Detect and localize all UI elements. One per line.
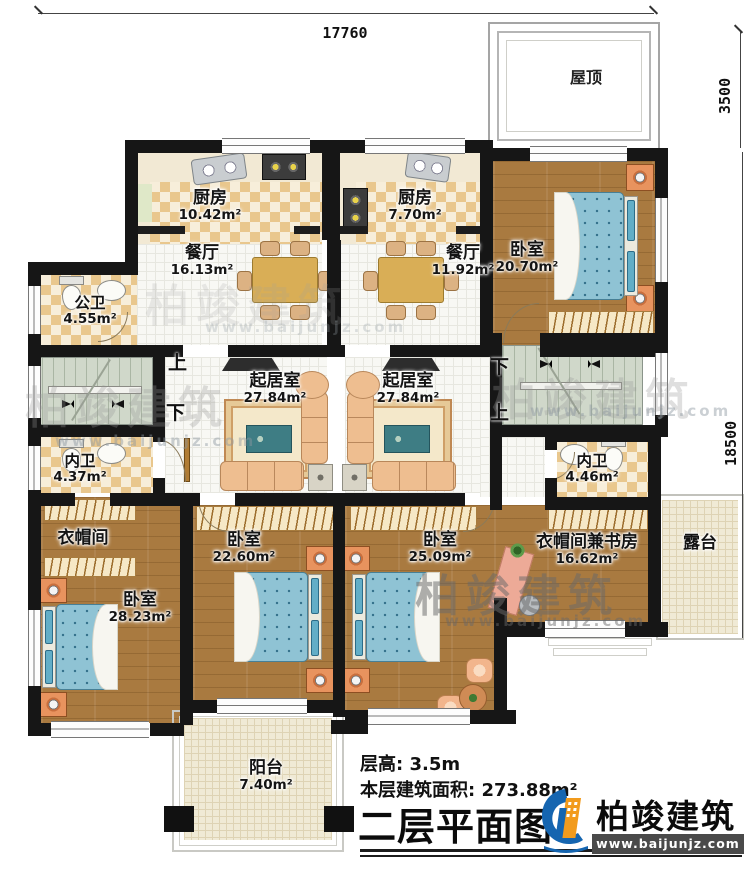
room-area: 4.46m² <box>537 470 647 486</box>
chair <box>290 241 310 256</box>
wall <box>322 140 340 240</box>
chair <box>416 305 436 320</box>
room-area: 10.42m² <box>155 208 265 224</box>
roof-label: 屋顶 <box>551 64 621 88</box>
public-bath-label: 公卫 4.55m² <box>35 294 145 328</box>
watermark-url: www.baijunjz.com <box>205 318 406 336</box>
study-label: 衣帽间兼书房 16.62m² <box>517 532 657 568</box>
right-dimension-line <box>742 152 743 638</box>
window <box>51 721 149 738</box>
room-name: 卧室 <box>385 530 495 550</box>
balcony-column <box>164 806 194 832</box>
wall <box>470 710 516 724</box>
wall <box>235 493 333 506</box>
dining-left-label: 餐厅 16.13m² <box>147 243 257 279</box>
living-left-label: 起居室 27.84m² <box>220 371 330 407</box>
brand-url: www.baijunjz.com <box>592 834 744 854</box>
wall <box>333 493 345 717</box>
roof-dimension-line <box>740 30 741 148</box>
dimension-width-label: 17760 <box>290 24 400 42</box>
top-dimension-line <box>38 13 654 14</box>
wardrobe <box>548 507 648 530</box>
wall <box>456 226 480 234</box>
nightstand <box>40 578 67 603</box>
tv <box>222 358 280 371</box>
dimension-roof-depth-label: 3500 <box>716 58 734 134</box>
wall <box>28 723 51 736</box>
porch-step <box>553 648 647 656</box>
porch-step <box>548 638 652 646</box>
sofa <box>372 461 456 491</box>
room-area: 7.70m² <box>360 208 470 224</box>
wardrobe <box>350 506 477 531</box>
window <box>655 198 668 282</box>
watermark-url: www.baijunjz.com <box>55 432 256 450</box>
stair-down-label: 下 <box>166 398 185 425</box>
nightstand <box>306 546 334 571</box>
nightstand <box>342 546 370 571</box>
bedroom-bottommid-label: 卧室 22.60m² <box>189 530 299 566</box>
room-area: 20.70m² <box>472 260 582 276</box>
room-name: 衣帽间 <box>28 528 138 548</box>
wall <box>180 700 217 713</box>
wall <box>28 345 183 357</box>
sofa <box>220 461 304 491</box>
balcony-column <box>324 806 354 832</box>
bedroom-bottomleft-label: 卧室 28.23m² <box>85 590 195 626</box>
bath-right-label: 内卫 4.46m² <box>537 452 647 486</box>
terrace-label: 露台 <box>645 533 750 553</box>
room-area: 25.09m² <box>385 550 495 566</box>
room-name: 卧室 <box>189 530 299 550</box>
room-name: 露台 <box>645 533 750 553</box>
window <box>28 610 41 686</box>
wall <box>340 226 368 234</box>
toilet <box>59 276 84 285</box>
terrace-frame <box>656 494 744 640</box>
coffee-table <box>384 425 430 453</box>
wall <box>28 262 138 275</box>
room-name: 衣帽间兼书房 <box>517 532 657 552</box>
room-area: 16.13m² <box>147 263 257 279</box>
room-name: 厨房 <box>360 188 470 208</box>
window <box>217 698 307 714</box>
watermark-url: www.baijunjz.com <box>445 612 646 630</box>
wall <box>545 497 660 510</box>
living-right-label: 起居室 27.84m² <box>353 371 463 407</box>
floor-height-note: 层高: 3.5m <box>360 750 640 776</box>
wall <box>540 333 668 357</box>
bed-headboard <box>42 606 56 688</box>
room-area: 4.55m² <box>35 312 145 328</box>
window <box>365 138 465 154</box>
room-area: 27.84m² <box>353 391 463 407</box>
cloak-left-label: 衣帽间 <box>28 528 138 548</box>
wall <box>294 226 320 234</box>
kitchen-left-label: 厨房 10.42m² <box>155 188 265 224</box>
room-name: 餐厅 <box>147 243 257 263</box>
stair-up-label: 上 <box>168 348 187 375</box>
end-table <box>308 464 333 491</box>
room-area: 16.62m² <box>517 552 657 568</box>
wall <box>307 700 345 713</box>
window <box>222 138 310 154</box>
room-area: 28.23m² <box>85 610 195 626</box>
chair <box>363 271 378 291</box>
bedroom-topright-label: 卧室 20.70m² <box>472 240 582 276</box>
stair-down-label: 下 <box>490 352 509 379</box>
bath-left-label: 内卫 4.37m² <box>25 452 135 486</box>
wall <box>228 345 345 357</box>
wall <box>345 493 465 506</box>
room-area: 7.40m² <box>211 778 321 794</box>
armchair <box>466 658 493 683</box>
kitchen-right-label: 厨房 7.70m² <box>360 188 470 224</box>
wall <box>150 723 184 736</box>
wardrobe <box>44 557 136 577</box>
nightstand <box>626 164 654 191</box>
chair <box>260 241 280 256</box>
room-name: 公卫 <box>35 294 145 312</box>
bedroom-bottomright-label: 卧室 25.09m² <box>385 530 495 566</box>
end-table <box>342 464 367 491</box>
wall <box>390 345 480 357</box>
kitchen-counter-end <box>138 184 152 222</box>
window <box>368 708 470 725</box>
room-area: 22.60m² <box>189 550 299 566</box>
stair-up-label: 上 <box>490 398 509 425</box>
wall <box>28 493 75 506</box>
room-name: 卧室 <box>472 240 582 260</box>
room-name: 起居室 <box>353 371 463 391</box>
brand-name: 柏竣建筑 <box>596 790 746 838</box>
bed-headboard <box>308 574 322 660</box>
room-name: 内卫 <box>25 452 135 470</box>
dimension-tick <box>734 24 743 33</box>
room-name: 阳台 <box>211 758 321 778</box>
room-area: 4.37m² <box>25 470 135 486</box>
balcony-label: 阳台 7.40m² <box>211 758 321 794</box>
nightstand <box>342 668 370 693</box>
room-name: 内卫 <box>537 452 647 470</box>
watermark-text: 柏竣建筑 <box>25 372 229 436</box>
brand-logo-icon <box>538 784 592 854</box>
kitchen-stove <box>262 154 306 180</box>
title-underline <box>360 855 742 857</box>
floor-plan-canvas: 17760 3500 18500 屋顶 <box>0 0 750 873</box>
bed-headboard <box>352 574 366 660</box>
chair <box>386 241 406 256</box>
window <box>530 146 627 162</box>
room-name: 厨房 <box>155 188 265 208</box>
bed-headboard <box>624 196 638 296</box>
wall <box>137 226 185 234</box>
wardrobe <box>548 311 654 335</box>
wall <box>125 140 138 274</box>
tv <box>382 358 440 371</box>
room-area: 27.84m² <box>220 391 330 407</box>
room-name: 卧室 <box>85 590 195 610</box>
room-name: 起居室 <box>220 371 330 391</box>
nightstand <box>306 668 334 693</box>
wall <box>331 720 368 734</box>
watermark-url: www.baijunjz.com <box>530 402 731 420</box>
nightstand <box>40 692 67 717</box>
